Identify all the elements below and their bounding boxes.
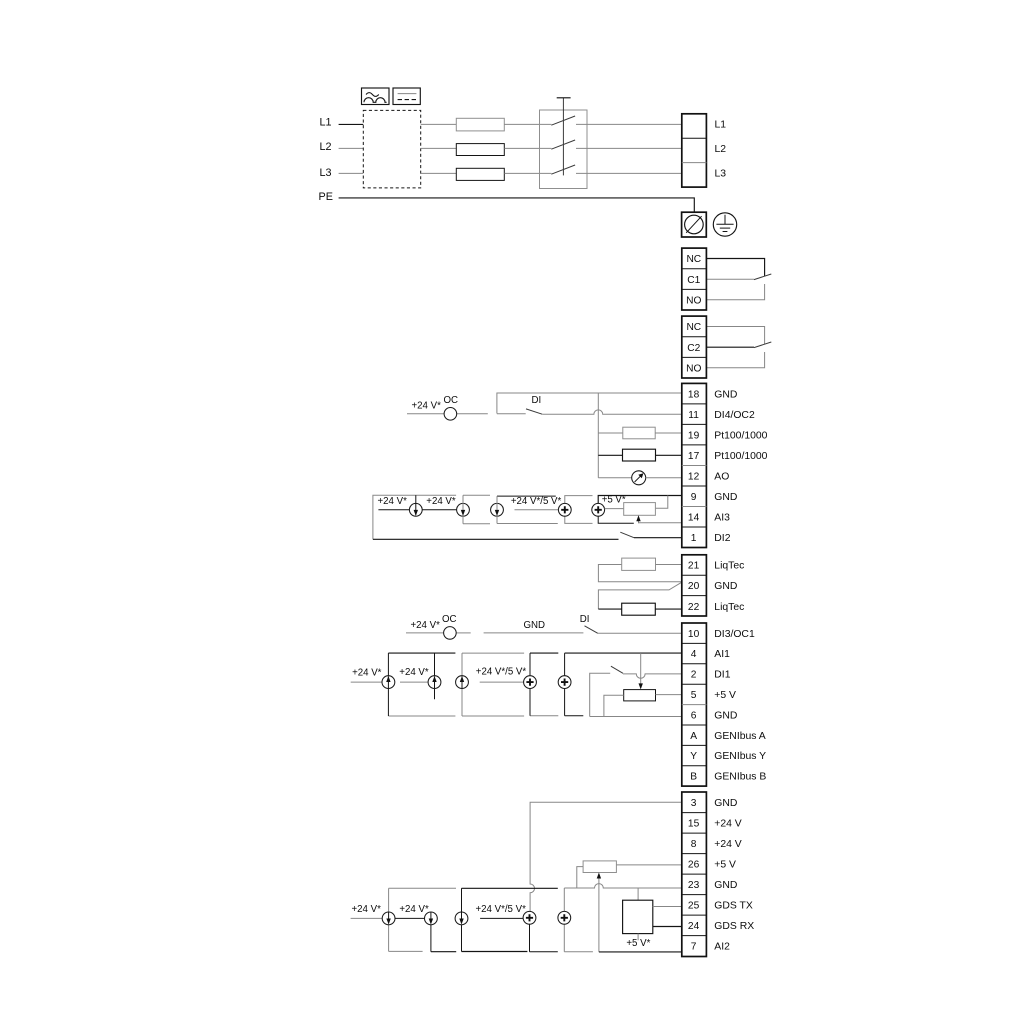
svg-text:GDS TX: GDS TX bbox=[714, 900, 753, 911]
svg-text:8: 8 bbox=[691, 839, 697, 850]
svg-text:+24 V*: +24 V* bbox=[426, 496, 456, 507]
svg-text:C2: C2 bbox=[687, 343, 700, 354]
svg-text:+24 V*: +24 V* bbox=[411, 620, 441, 631]
svg-text:24: 24 bbox=[688, 921, 700, 932]
svg-text:DI3/OC1: DI3/OC1 bbox=[714, 629, 755, 640]
svg-text:LiqTec: LiqTec bbox=[714, 561, 744, 572]
svg-text:AI3: AI3 bbox=[714, 512, 730, 523]
svg-text:GENIbus B: GENIbus B bbox=[714, 772, 766, 783]
svg-text:C1: C1 bbox=[687, 275, 700, 286]
svg-text:AI1: AI1 bbox=[714, 649, 730, 660]
svg-text:25: 25 bbox=[688, 900, 700, 911]
svg-text:17: 17 bbox=[688, 451, 700, 462]
svg-text:+24 V*/5 V*: +24 V*/5 V* bbox=[511, 496, 562, 507]
svg-text:+5 V*: +5 V* bbox=[602, 495, 626, 506]
svg-text:AI2: AI2 bbox=[714, 941, 730, 952]
svg-text:L2: L2 bbox=[715, 144, 727, 155]
svg-text:2: 2 bbox=[691, 670, 697, 681]
svg-text:GND: GND bbox=[714, 581, 737, 592]
svg-text:NC: NC bbox=[686, 322, 701, 333]
svg-text:GND: GND bbox=[714, 798, 737, 809]
svg-text:21: 21 bbox=[688, 561, 700, 572]
svg-text:Pt100/1000: Pt100/1000 bbox=[714, 451, 767, 462]
svg-text:DI2: DI2 bbox=[714, 533, 730, 544]
svg-text:+24 V*: +24 V* bbox=[378, 496, 408, 507]
svg-text:15: 15 bbox=[688, 818, 700, 829]
svg-text:+5 V*: +5 V* bbox=[626, 938, 650, 949]
svg-text:18: 18 bbox=[688, 389, 700, 400]
svg-text:NO: NO bbox=[686, 296, 701, 307]
svg-text:+24 V: +24 V bbox=[714, 839, 742, 850]
svg-text:A: A bbox=[690, 731, 697, 742]
svg-text:+24 V*: +24 V* bbox=[399, 904, 429, 915]
svg-text:Y: Y bbox=[690, 751, 697, 762]
svg-text:+5 V: +5 V bbox=[714, 859, 736, 870]
svg-text:L2: L2 bbox=[320, 141, 332, 153]
svg-text:Pt100/1000: Pt100/1000 bbox=[714, 430, 767, 441]
svg-text:22: 22 bbox=[688, 602, 700, 613]
svg-text:+5 V: +5 V bbox=[714, 690, 736, 701]
svg-text:23: 23 bbox=[688, 880, 700, 891]
svg-text:+24 V*/5 V*: +24 V*/5 V* bbox=[476, 667, 527, 678]
svg-text:9: 9 bbox=[691, 492, 697, 503]
svg-text:+24 V*: +24 V* bbox=[412, 400, 442, 411]
svg-text:+24 V*: +24 V* bbox=[399, 667, 429, 678]
svg-text:LiqTec: LiqTec bbox=[714, 602, 744, 613]
svg-text:NC: NC bbox=[686, 254, 701, 265]
svg-text:GND: GND bbox=[714, 710, 737, 721]
svg-text:NO: NO bbox=[686, 364, 701, 375]
svg-text:3: 3 bbox=[691, 798, 697, 809]
svg-text:GND: GND bbox=[714, 492, 737, 503]
svg-text:DI4/OC2: DI4/OC2 bbox=[714, 410, 755, 421]
svg-text:DI: DI bbox=[532, 395, 542, 406]
svg-text:GND: GND bbox=[714, 389, 737, 400]
svg-text:L1: L1 bbox=[715, 119, 727, 130]
svg-text:19: 19 bbox=[688, 430, 700, 441]
svg-text:GENIbus A: GENIbus A bbox=[714, 731, 765, 742]
svg-text:1: 1 bbox=[691, 533, 697, 544]
svg-text:7: 7 bbox=[691, 941, 697, 952]
svg-text:+24 V*: +24 V* bbox=[352, 668, 382, 679]
svg-text:+24 V*/5 V*: +24 V*/5 V* bbox=[476, 904, 527, 915]
svg-text:11: 11 bbox=[688, 410, 699, 421]
svg-text:10: 10 bbox=[688, 629, 700, 640]
svg-text:DI1: DI1 bbox=[714, 670, 730, 681]
svg-text:6: 6 bbox=[691, 710, 697, 721]
svg-text:+24 V: +24 V bbox=[714, 818, 742, 829]
svg-text:26: 26 bbox=[688, 859, 700, 870]
svg-text:GDS RX: GDS RX bbox=[714, 921, 754, 932]
svg-text:GENIbus Y: GENIbus Y bbox=[714, 751, 766, 762]
svg-text:DI: DI bbox=[580, 614, 590, 625]
svg-text:OC: OC bbox=[442, 614, 457, 625]
svg-text:12: 12 bbox=[688, 471, 700, 482]
svg-text:5: 5 bbox=[691, 690, 697, 701]
svg-text:L3: L3 bbox=[715, 168, 727, 179]
svg-text:GND: GND bbox=[714, 880, 737, 891]
svg-text:L1: L1 bbox=[320, 117, 332, 129]
svg-text:PE: PE bbox=[319, 191, 333, 203]
svg-text:4: 4 bbox=[691, 649, 697, 660]
svg-text:L3: L3 bbox=[320, 167, 332, 179]
svg-text:AO: AO bbox=[714, 471, 729, 482]
svg-text:+24 V*: +24 V* bbox=[352, 904, 382, 915]
svg-text:14: 14 bbox=[688, 512, 700, 523]
svg-text:GND: GND bbox=[524, 620, 546, 631]
svg-text:OC: OC bbox=[444, 395, 459, 406]
svg-text:B: B bbox=[690, 772, 697, 783]
svg-text:20: 20 bbox=[688, 581, 700, 592]
